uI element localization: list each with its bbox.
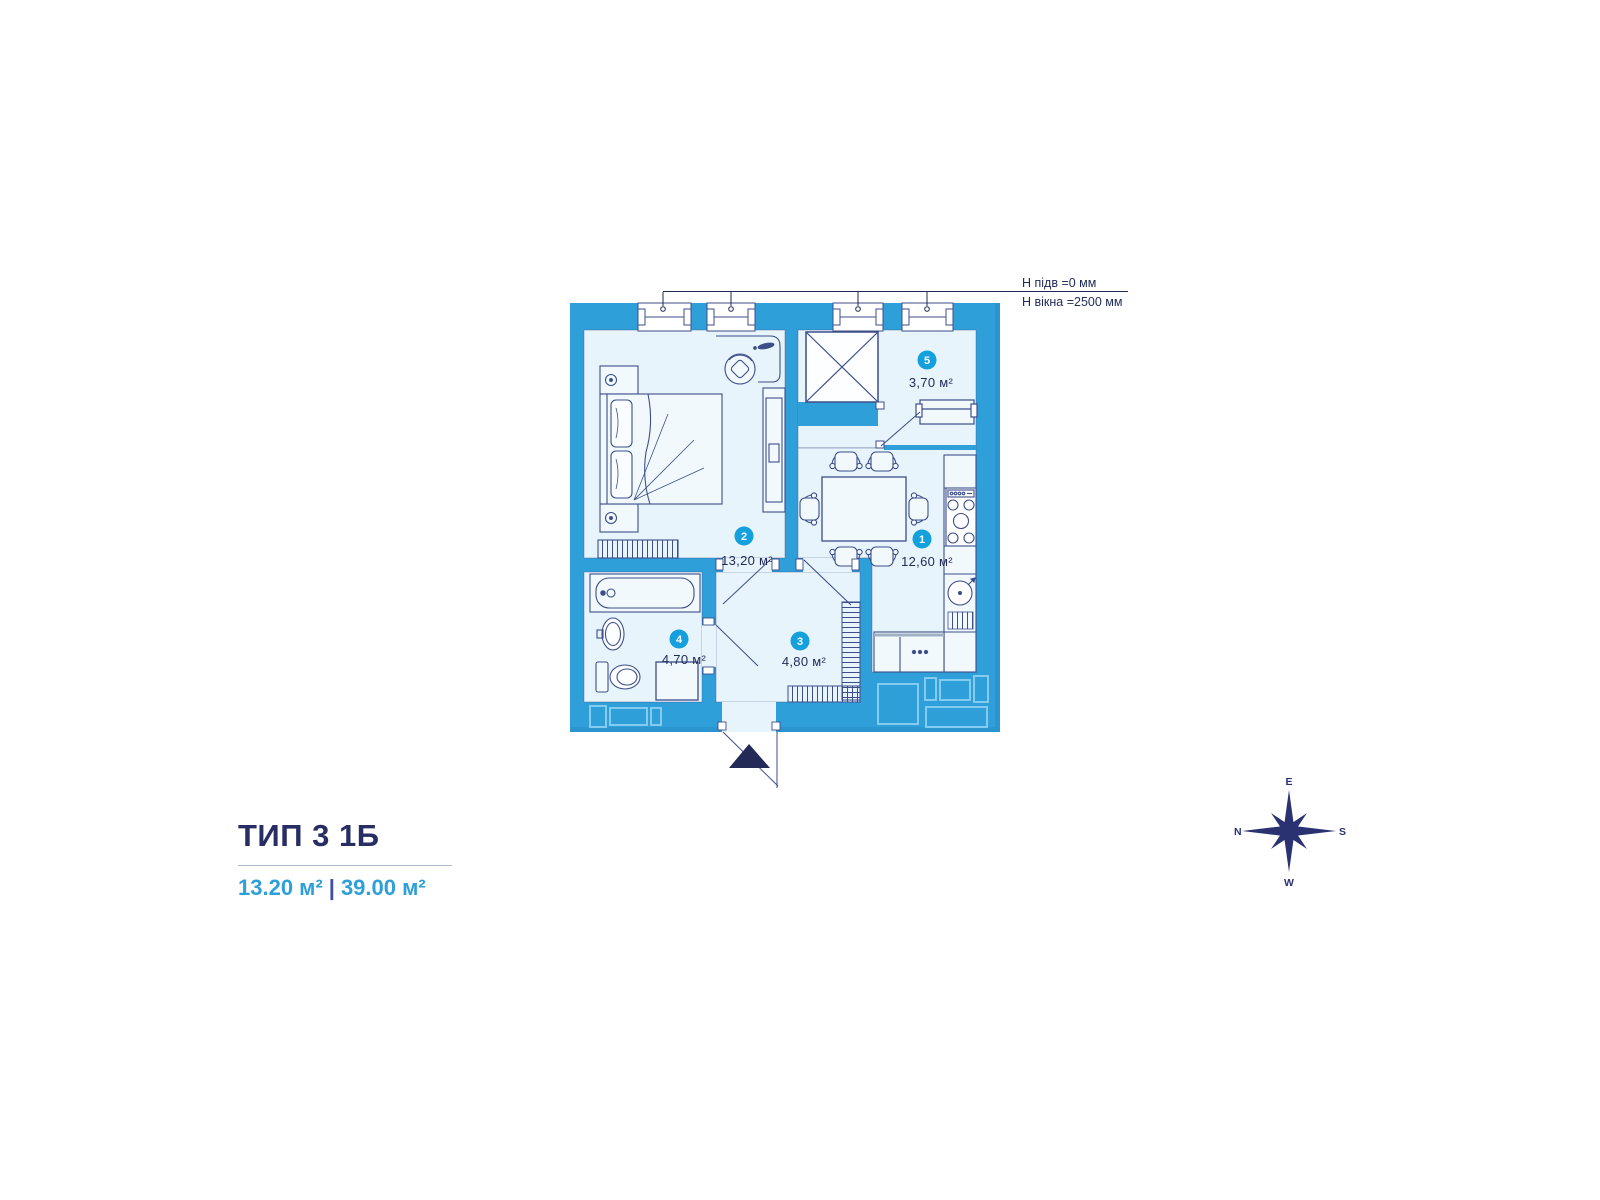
- hallway-floor: [716, 572, 860, 702]
- compass-top-label: E: [1285, 776, 1292, 788]
- window-height-label: Н вікна =2500 мм: [1022, 295, 1122, 309]
- svg-text:12,60 м²: 12,60 м²: [901, 554, 953, 569]
- title-divider-line: [238, 865, 452, 866]
- entrance-door-gap: [722, 702, 776, 732]
- floor-height-label: Н підв =0 мм: [1022, 276, 1096, 290]
- plan-type-title: ТИП 3 1Б: [238, 818, 518, 854]
- compass-bottom-label: W: [1284, 877, 1294, 888]
- floorplan-page: { "title": { "name": "ТИП 3 1Б", "area_l…: [0, 0, 1600, 1200]
- dish-rack: [948, 612, 973, 629]
- washing-machine: [656, 662, 698, 700]
- bedroom-radiator: [598, 540, 678, 558]
- nightstand-top: [600, 366, 638, 394]
- svg-text:2: 2: [741, 531, 747, 543]
- total-area-value: 39.00 м²: [341, 875, 426, 900]
- kitchen-counter-bottom: [874, 632, 944, 672]
- title-block: ТИП 3 1Б 13.20 м²|39.00 м²: [238, 818, 518, 901]
- svg-text:13,20 м²: 13,20 м²: [721, 553, 773, 568]
- compass-right-label: S: [1339, 826, 1346, 838]
- shaft-box: [806, 332, 878, 402]
- svg-text:4,80 м²: 4,80 м²: [782, 654, 827, 669]
- balcony-radiator: [916, 400, 977, 424]
- living-area-value: 13.20 м²: [238, 875, 323, 900]
- svg-text:5: 5: [924, 355, 930, 367]
- entrance-arrow: [729, 744, 770, 768]
- compass: E N S W: [1232, 776, 1348, 888]
- wardrobe: [763, 388, 785, 512]
- floor-plan: Н підв =0 мм Н вікна =2500 мм: [540, 250, 1160, 810]
- plan-areas: 13.20 м²|39.00 м²: [238, 875, 518, 901]
- svg-text:4,70 м²: 4,70 м²: [662, 652, 707, 667]
- hall-wardrobe-horizontal: [788, 686, 860, 702]
- compass-left-label: N: [1234, 826, 1242, 838]
- area-separator: |: [323, 875, 341, 900]
- hall-wardrobe-vertical: [842, 602, 860, 700]
- bed: [600, 394, 722, 504]
- floor-plan-svg: Н підв =0 мм Н вікна =2500 мм: [540, 250, 1160, 810]
- stove: [946, 488, 976, 546]
- svg-text:3: 3: [797, 636, 803, 648]
- dining-table: [822, 477, 906, 541]
- bathtub: [590, 574, 700, 612]
- toilet: [596, 662, 640, 692]
- svg-text:1: 1: [919, 534, 925, 546]
- compass-rose: E N S W: [1232, 776, 1348, 888]
- svg-text:4: 4: [676, 634, 683, 646]
- svg-text:3,70 м²: 3,70 м²: [909, 375, 954, 390]
- nightstand-bottom: [600, 504, 638, 532]
